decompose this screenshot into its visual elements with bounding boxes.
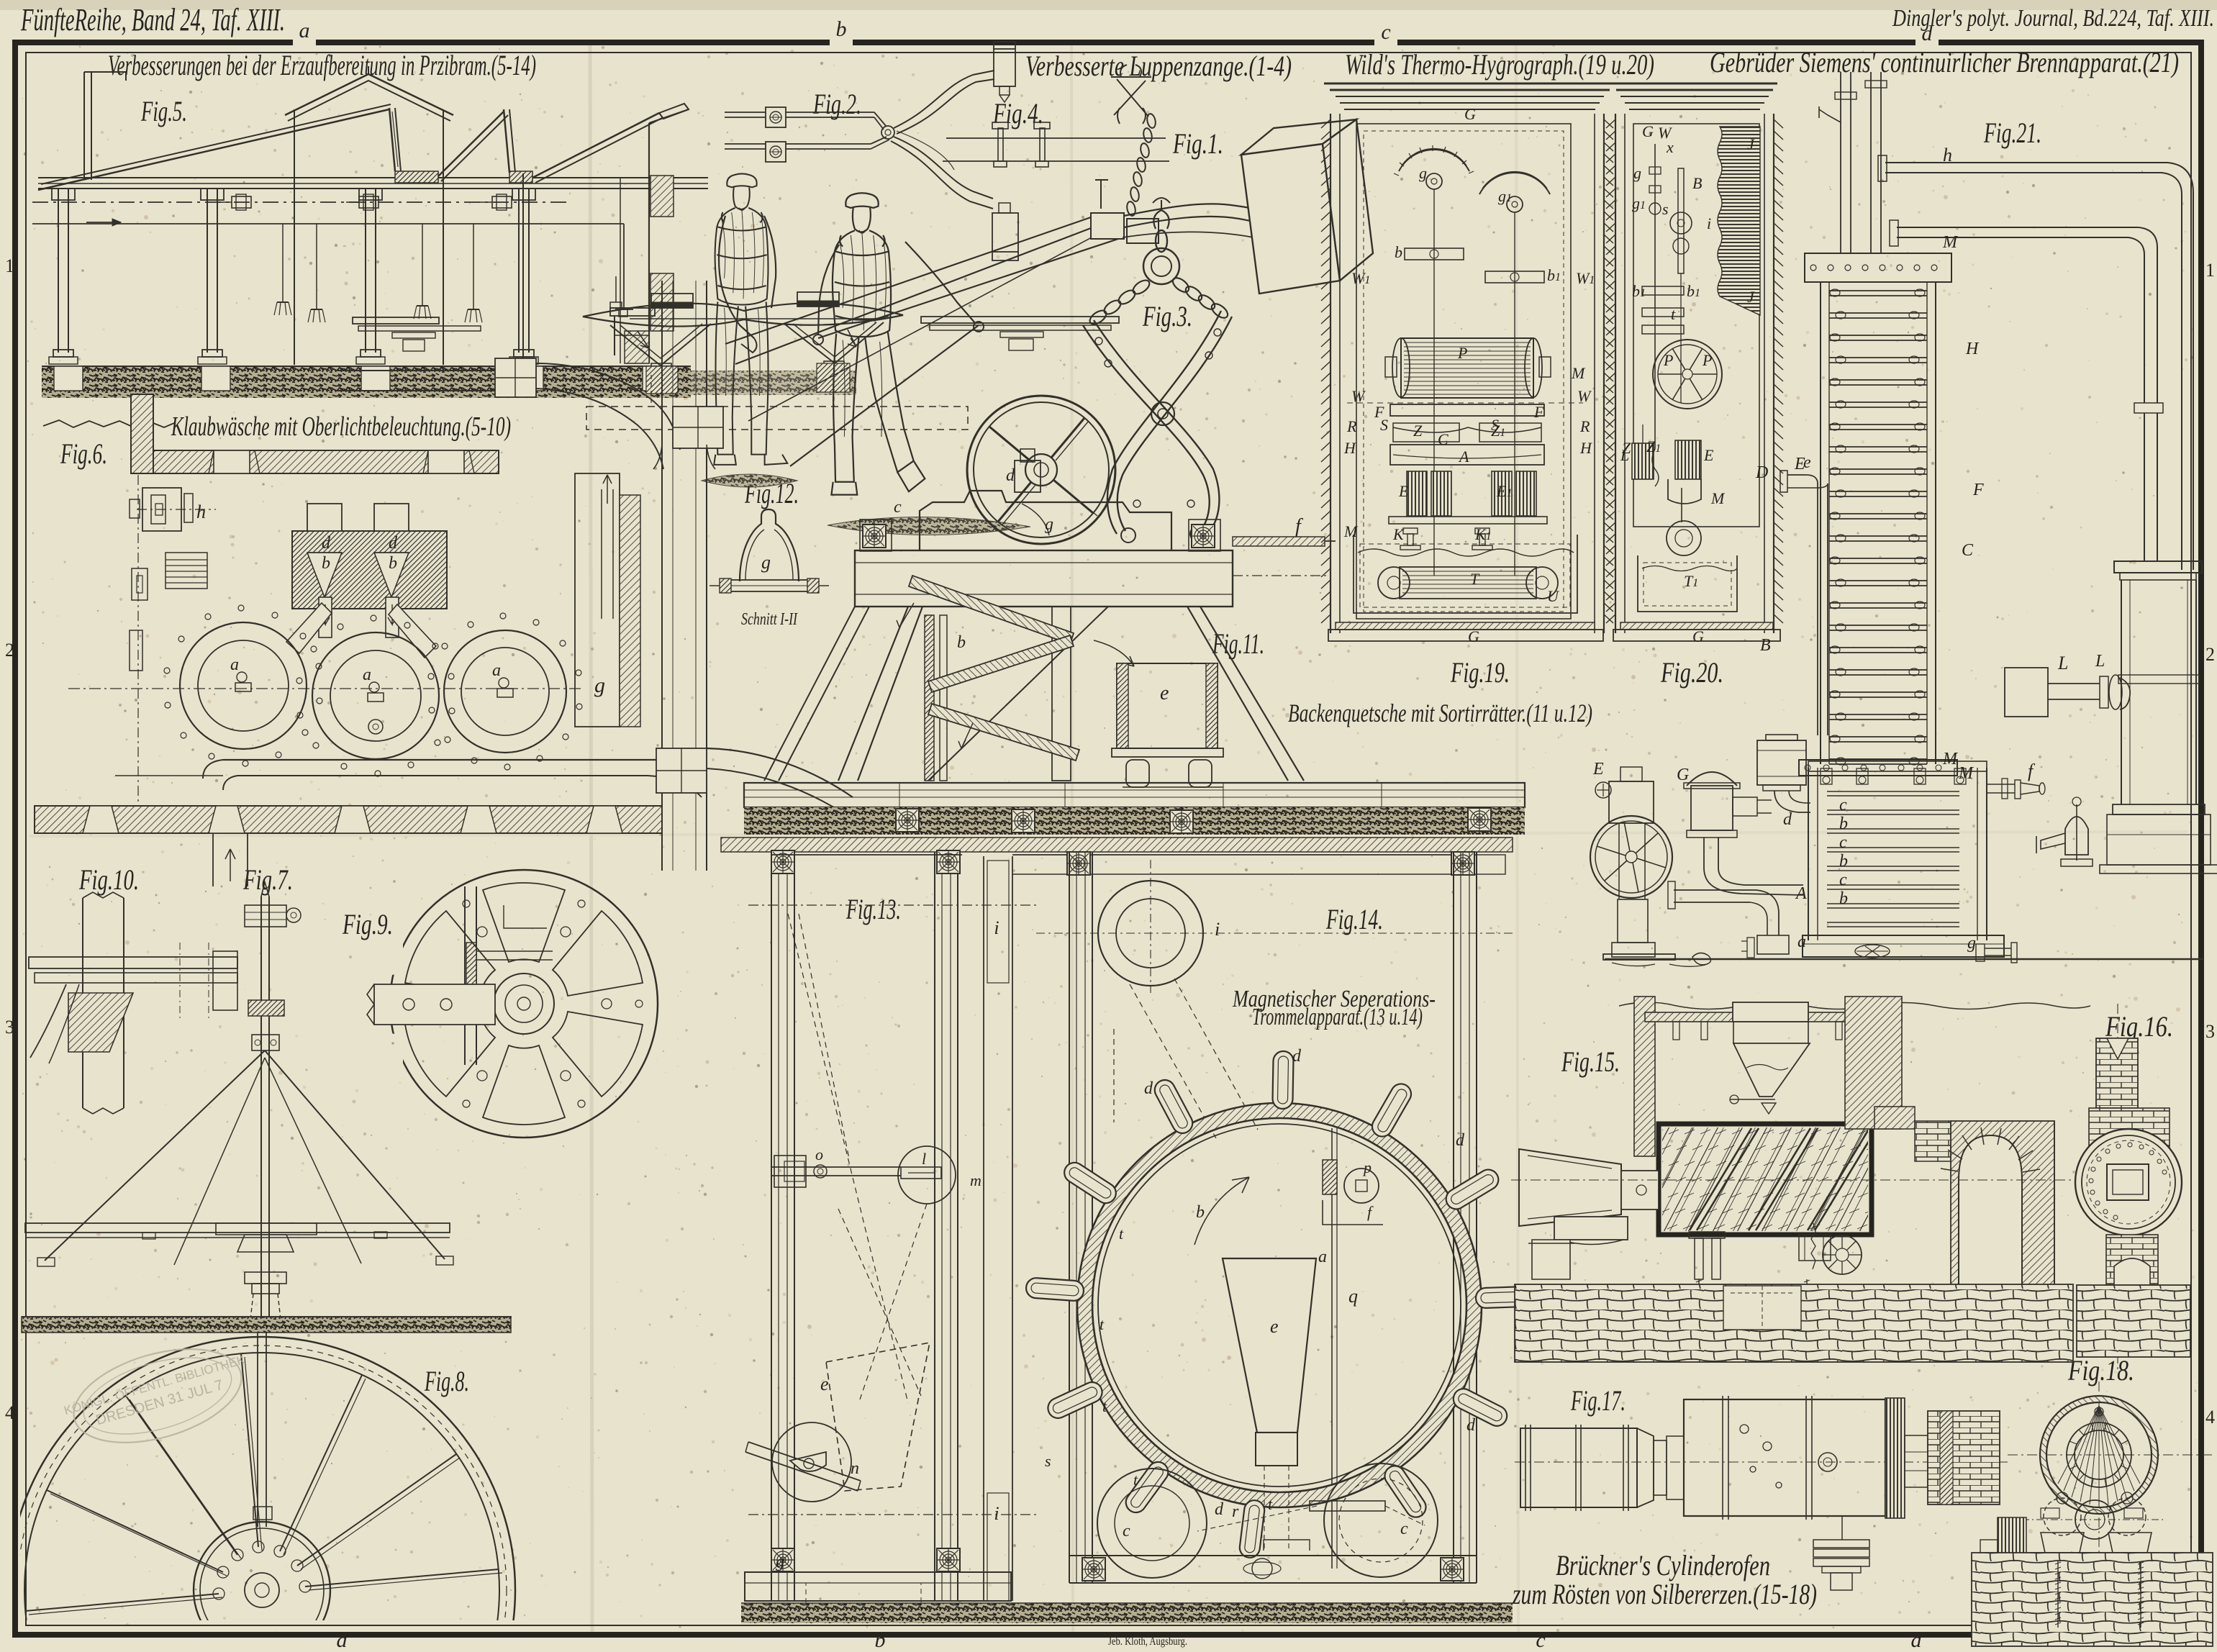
svg-text:h: h — [196, 501, 206, 522]
svg-text:1: 1 — [2205, 260, 2215, 281]
svg-text:q: q — [1348, 1286, 1358, 1307]
svg-text:s: s — [1045, 1452, 1051, 1470]
svg-text:J: J — [1747, 135, 1755, 153]
svg-text:A: A — [1458, 448, 1469, 466]
svg-text:c: c — [1381, 20, 1390, 44]
svg-text:Verbesserte Luppenzange.(1-4): Verbesserte Luppenzange.(1-4) — [1025, 50, 1292, 82]
svg-text:D: D — [1755, 463, 1768, 482]
svg-text:d: d — [1783, 810, 1792, 829]
svg-text:G: G — [1642, 122, 1654, 140]
svg-text:Backenquetsche mit Sortirrätte: Backenquetsche mit Sortirrätter.(11 u.12… — [1288, 699, 1592, 727]
svg-text:P: P — [1457, 344, 1467, 362]
svg-text:R: R — [1579, 417, 1590, 435]
svg-text:Fig.10.: Fig.10. — [78, 863, 139, 896]
svg-text:g: g — [1419, 164, 1427, 182]
svg-text:E: E — [1703, 446, 1714, 464]
svg-text:B: B — [1692, 174, 1702, 192]
svg-text:d: d — [1006, 466, 1015, 485]
svg-text:n: n — [851, 1459, 859, 1478]
svg-text:g: g — [761, 552, 771, 573]
svg-text:G: G — [1677, 766, 1689, 784]
svg-text:e: e — [820, 1374, 829, 1394]
svg-text:d: d — [389, 534, 398, 553]
svg-text:b: b — [957, 633, 966, 652]
svg-text:a: a — [363, 666, 371, 684]
svg-text:Fig.20.: Fig.20. — [1660, 656, 1723, 689]
svg-text:M: M — [1571, 364, 1586, 382]
svg-text:b: b — [836, 17, 847, 41]
svg-text:b: b — [322, 554, 330, 573]
svg-text:E: E — [1592, 760, 1604, 779]
svg-text:F: F — [1972, 481, 1984, 499]
svg-text:Wild's Thermo-Hygrograph.(19 u: Wild's Thermo-Hygrograph.(19 u.20) — [1345, 48, 1654, 81]
svg-text:Fig.6.: Fig.6. — [60, 437, 107, 470]
svg-text:a: a — [492, 661, 501, 680]
svg-text:Fig.8.: Fig.8. — [424, 1365, 469, 1397]
svg-text:x: x — [1666, 138, 1674, 156]
svg-text:l: l — [922, 1150, 926, 1168]
svg-text:J: J — [1747, 288, 1755, 306]
svg-text:t: t — [1100, 1315, 1105, 1333]
svg-text:Fig.5.: Fig.5. — [140, 95, 187, 127]
svg-text:Fig.1.: Fig.1. — [1172, 127, 1223, 160]
svg-text:3: 3 — [2205, 1021, 2215, 1042]
svg-text:B: B — [1760, 636, 1771, 655]
svg-text:G: G — [1692, 627, 1704, 645]
svg-text:c: c — [894, 498, 902, 517]
svg-text:Gebrüder Siemens' continuirlic: Gebrüder Siemens' continuirlicher Brenna… — [1710, 46, 2179, 78]
svg-text:c: c — [1839, 796, 1847, 814]
svg-text:Verbesserungen bei der Erzaufb: Verbesserungen bei der Erzaufbereitung i… — [108, 49, 536, 81]
svg-text:Fig.14.: Fig.14. — [1325, 903, 1383, 935]
svg-text:P: P — [1702, 351, 1712, 369]
svg-text:H: H — [1343, 439, 1356, 457]
svg-text:Dingler's polyt. Journal, Bd.2: Dingler's polyt. Journal, Bd.224, Taf. X… — [1892, 5, 2214, 32]
svg-text:m: m — [970, 1171, 981, 1189]
svg-text:i: i — [1707, 214, 1711, 232]
svg-text:c: c — [1839, 871, 1847, 889]
svg-text:g: g — [594, 673, 605, 697]
svg-text:M: M — [1343, 522, 1359, 540]
svg-text:s: s — [1662, 200, 1669, 218]
svg-text:Fig.15.: Fig.15. — [1561, 1045, 1620, 1078]
svg-text:H: H — [1965, 340, 1980, 358]
svg-text:g: g — [1045, 515, 1053, 534]
svg-text:Fig.17.: Fig.17. — [1570, 1384, 1626, 1417]
svg-text:e: e — [1270, 1316, 1279, 1337]
svg-text:i: i — [1215, 919, 1220, 940]
svg-text:Trommelapparat.(13 u.14): Trommelapparat.(13 u.14) — [1252, 1004, 1423, 1030]
svg-text:1: 1 — [5, 255, 14, 276]
svg-text:c: c — [1839, 833, 1847, 852]
svg-text:4: 4 — [5, 1402, 14, 1423]
svg-text:Fig.3.: Fig.3. — [1142, 300, 1192, 332]
svg-text:Brückner's Cylinderofen: Brückner's Cylinderofen — [1556, 1549, 1770, 1581]
svg-text:c: c — [1536, 1628, 1545, 1648]
svg-text:S: S — [1491, 416, 1499, 434]
svg-text:2: 2 — [5, 640, 14, 661]
svg-text:g: g — [1967, 934, 1976, 953]
svg-text:a: a — [1797, 932, 1806, 951]
svg-text:4: 4 — [2205, 1407, 2215, 1428]
svg-text:b: b — [1839, 814, 1848, 833]
svg-text:c: c — [1400, 1520, 1408, 1538]
svg-text:Fig.9.: Fig.9. — [342, 908, 393, 940]
svg-text:W: W — [1351, 387, 1366, 405]
svg-text:L: L — [2057, 653, 2068, 673]
svg-text:M: M — [1942, 750, 1959, 768]
svg-text:d: d — [1144, 1079, 1153, 1098]
svg-text:t: t — [1268, 1495, 1273, 1513]
svg-text:G: G — [1464, 105, 1476, 123]
svg-text:e: e — [1803, 453, 1811, 472]
svg-text:d: d — [1215, 1500, 1224, 1519]
svg-text:Jeb. Kloth, Augsburg.: Jeb. Kloth, Augsburg. — [1108, 1635, 1187, 1648]
svg-text:a: a — [1318, 1248, 1327, 1266]
svg-text:b: b — [1839, 852, 1848, 871]
svg-text:Fig.21.: Fig.21. — [1983, 117, 2041, 149]
svg-text:Fig.4.: Fig.4. — [992, 97, 1043, 130]
svg-text:U: U — [1547, 587, 1560, 605]
svg-text:zum Rösten von Silbererzen.(15: zum Rösten von Silbererzen.(15-18) — [1512, 1578, 1817, 1610]
svg-text:Fig.2.: Fig.2. — [812, 88, 861, 120]
svg-text:d: d — [1292, 1047, 1302, 1066]
svg-text:o: o — [815, 1145, 823, 1163]
svg-text:t: t — [1102, 1397, 1107, 1415]
svg-text:b: b — [1395, 243, 1402, 261]
svg-text:b: b — [1196, 1203, 1205, 1222]
svg-text:i: i — [994, 1503, 999, 1524]
svg-text:g: g — [776, 1553, 784, 1571]
svg-text:H: H — [1579, 439, 1592, 457]
svg-text:a: a — [230, 655, 239, 674]
svg-text:e: e — [1160, 682, 1169, 704]
svg-text:3: 3 — [5, 1017, 14, 1038]
svg-text:d: d — [322, 534, 331, 553]
svg-text:Z: Z — [1413, 422, 1423, 440]
svg-text:Fig.18.: Fig.18. — [2067, 1354, 2134, 1386]
svg-text:i: i — [994, 917, 999, 938]
svg-text:F: F — [1533, 403, 1544, 421]
svg-text:g: g — [1633, 164, 1641, 182]
svg-text:K: K — [1392, 525, 1405, 543]
svg-text:C: C — [1962, 541, 1974, 560]
svg-text:Klaubwäsche mit Oberlichtbeleu: Klaubwäsche mit Oberlichtbeleuchtung.(5-… — [171, 412, 511, 442]
svg-text:d: d — [1466, 1416, 1476, 1435]
svg-text:t: t — [1119, 1225, 1124, 1243]
svg-text:E: E — [1398, 482, 1409, 500]
svg-text:S: S — [1380, 416, 1388, 434]
svg-text:M: M — [1942, 233, 1959, 252]
svg-text:t: t — [1133, 1471, 1138, 1489]
svg-text:A: A — [1795, 884, 1807, 903]
svg-text:b: b — [1839, 889, 1848, 908]
svg-text:FünfteReihe, Band 24, Taf. XII: FünfteReihe, Band 24, Taf. XIII. — [20, 2, 285, 37]
svg-text:Fig.13.: Fig.13. — [845, 893, 901, 925]
svg-text:Z: Z — [1622, 439, 1631, 457]
svg-text:h: h — [1943, 145, 1952, 165]
svg-text:t: t — [1671, 305, 1676, 323]
svg-text:M: M — [1710, 489, 1726, 507]
svg-text:Fig.11.: Fig.11. — [1212, 627, 1264, 660]
svg-text:T: T — [1470, 570, 1480, 588]
svg-text:Schnitt I-II: Schnitt I-II — [741, 610, 798, 629]
svg-text:R: R — [1346, 417, 1357, 435]
svg-text:G: G — [1468, 627, 1479, 645]
svg-text:c: c — [1123, 1522, 1130, 1540]
svg-text:C: C — [1438, 430, 1448, 448]
svg-text:L: L — [2095, 652, 2105, 671]
svg-text:r: r — [1232, 1502, 1239, 1521]
svg-text:d: d — [1456, 1131, 1465, 1150]
svg-text:P: P — [1663, 351, 1673, 369]
svg-text:b: b — [875, 1628, 886, 1648]
svg-text:a: a — [299, 19, 310, 42]
svg-text:a: a — [337, 1628, 348, 1648]
svg-text:d: d — [1911, 1628, 1923, 1648]
svg-text:2: 2 — [2205, 644, 2215, 665]
svg-text:Fig.19.: Fig.19. — [1450, 656, 1510, 689]
svg-text:M: M — [1958, 764, 1975, 783]
svg-text:b: b — [389, 554, 397, 573]
svg-text:W: W — [1577, 387, 1592, 405]
svg-text:p: p — [1362, 1158, 1372, 1176]
